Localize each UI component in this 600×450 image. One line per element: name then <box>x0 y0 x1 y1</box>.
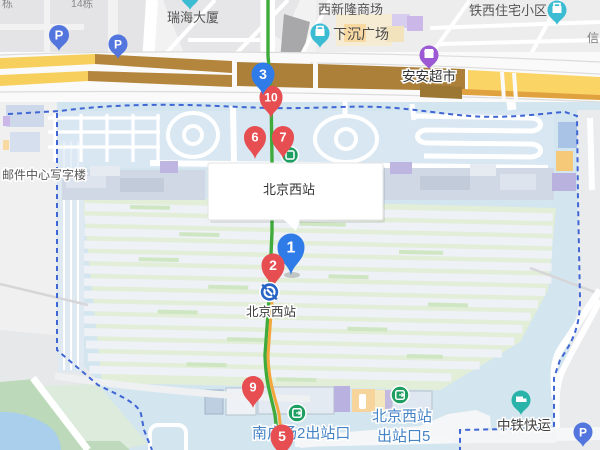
svg-text:北京西站: 北京西站 <box>246 305 296 319</box>
svg-text:14栋: 14栋 <box>71 0 94 10</box>
svg-text:P: P <box>114 38 122 52</box>
svg-text:P: P <box>55 28 64 43</box>
svg-text:9: 9 <box>249 380 256 395</box>
svg-text:7: 7 <box>279 130 286 145</box>
svg-text:下沉广场: 下沉广场 <box>333 26 389 42</box>
svg-text:安安超市: 安安超市 <box>402 68 456 84</box>
svg-text:铁西住宅小区: 铁西住宅小区 <box>469 3 547 18</box>
svg-text:3: 3 <box>259 66 267 82</box>
svg-text:北京西站: 北京西站 <box>372 408 432 425</box>
svg-text:5: 5 <box>278 428 286 444</box>
svg-text:6: 6 <box>251 130 258 145</box>
svg-text:南广场2出站口: 南广场2出站口 <box>252 425 350 442</box>
svg-text:西新隆商场: 西新隆商场 <box>318 2 383 17</box>
svg-text:瑞海大厦: 瑞海大厦 <box>167 10 219 25</box>
svg-text:出站口5: 出站口5 <box>377 428 430 445</box>
svg-text:信: 信 <box>587 31 599 45</box>
svg-text:P: P <box>579 426 587 440</box>
svg-text:北京西站: 北京西站 <box>263 182 315 197</box>
svg-text:1: 1 <box>287 240 296 257</box>
svg-text:2: 2 <box>269 257 277 273</box>
svg-text:10: 10 <box>264 91 278 105</box>
svg-text:栋: 栋 <box>2 0 13 10</box>
svg-text:邮件中心写字楼: 邮件中心写字楼 <box>2 167 86 182</box>
svg-text:中铁快运: 中铁快运 <box>497 418 551 433</box>
